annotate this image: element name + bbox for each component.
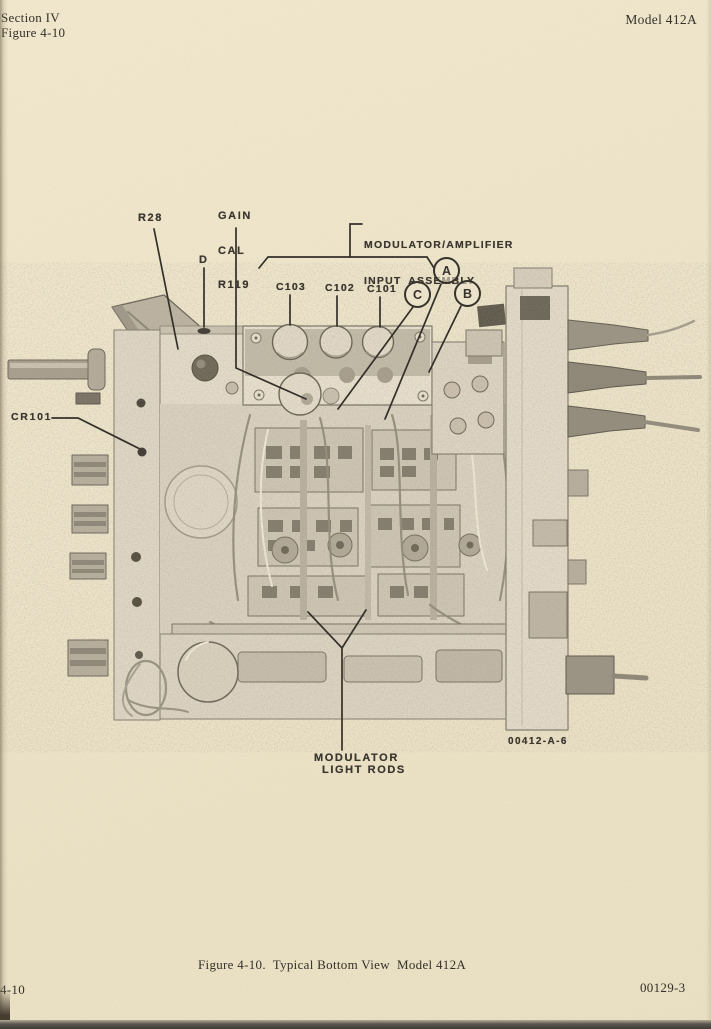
- callout-cr101: CR101: [11, 411, 52, 423]
- label-line: R119: [218, 280, 252, 292]
- callout-c102: C102: [325, 282, 355, 294]
- header-model: Model 412A: [625, 12, 697, 28]
- scan-bottom-edge: [0, 1020, 711, 1029]
- photo-grain: [8, 285, 700, 730]
- callout-letter-a: A: [433, 257, 460, 284]
- header-figure-ref: Figure 4-10: [1, 25, 65, 41]
- photo-id: 00412-A-6: [508, 736, 568, 748]
- callout-letter-c: C: [404, 281, 431, 308]
- callout-c101: C101: [367, 283, 397, 295]
- page-left-crease: [0, 0, 8, 1029]
- label-line: GAIN: [218, 211, 252, 223]
- manual-page: Section IV Figure 4-10 Model 412A R28 GA…: [0, 0, 711, 1029]
- callout-d: D: [199, 255, 209, 267]
- callout-c103: C103: [276, 281, 306, 293]
- chassis-photo: [0, 0, 711, 1029]
- label-line: CAL: [218, 246, 252, 258]
- callout-letter-b: B: [454, 280, 481, 307]
- label-line: MODULATOR/AMPLIFIER: [364, 239, 514, 251]
- doc-number: 00129-3: [640, 980, 685, 996]
- figure-caption: Figure 4-10. Typical Bottom View Model 4…: [198, 957, 466, 973]
- page-right-shadow: [706, 0, 711, 1029]
- callout-light-rods-line2: LIGHT RODS: [322, 765, 406, 777]
- callout-gain-cal-r119: GAIN CAL R119: [218, 188, 252, 315]
- callout-r28: R28: [138, 213, 163, 225]
- header-section: Section IV: [1, 10, 60, 26]
- callout-light-rods-line1: MODULATOR: [314, 753, 399, 765]
